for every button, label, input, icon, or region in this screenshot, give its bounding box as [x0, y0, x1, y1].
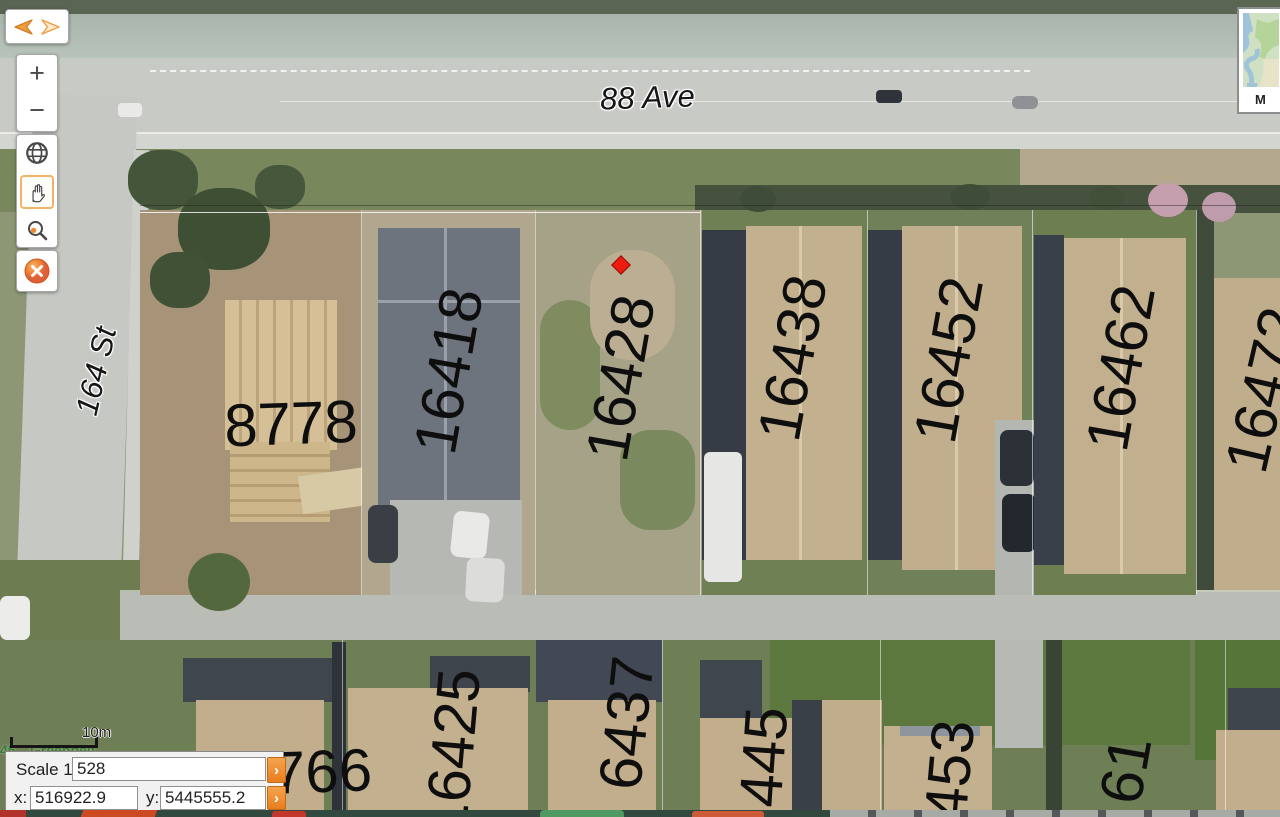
lane-road — [120, 592, 1280, 640]
y-label: y: — [146, 788, 159, 808]
parked-car — [450, 510, 491, 560]
apply-coordinates-button[interactable]: › — [267, 786, 286, 810]
parcel-label: 766 — [271, 740, 373, 803]
lot-line — [880, 640, 881, 810]
vehicle-on-road — [876, 90, 902, 103]
house-roof — [822, 700, 882, 817]
zoom-select-icon[interactable] — [25, 218, 49, 242]
roof-shadow — [868, 230, 904, 560]
scale-label: Scale 1: — [16, 760, 77, 780]
taskbar-sliver — [0, 810, 1280, 817]
vehicle-on-road — [1012, 96, 1038, 109]
lot-line — [700, 210, 701, 595]
minimap-label: M — [1255, 92, 1266, 107]
zoom-in-button[interactable]: + — [17, 55, 57, 92]
x-coordinate-input[interactable] — [30, 786, 138, 810]
x-label: x: — [14, 788, 27, 808]
globe-icon[interactable] — [24, 140, 50, 166]
parcel-label: 445 — [731, 705, 798, 809]
taskbar-icon — [81, 810, 158, 817]
taskbar-icon — [540, 810, 624, 817]
parked-car — [368, 505, 398, 563]
shrub — [950, 184, 990, 210]
lot-line — [1225, 640, 1226, 810]
parked-car — [0, 596, 30, 640]
survey-line — [140, 212, 700, 213]
back-arrow-icon[interactable] — [11, 18, 35, 36]
taskbar-section — [830, 810, 1280, 817]
driveway — [995, 640, 1043, 748]
apply-scale-button[interactable]: › — [267, 757, 286, 783]
parcel-label: 6437 — [590, 653, 664, 792]
lot-line — [1032, 210, 1033, 595]
close-x-icon[interactable] — [24, 258, 50, 284]
taskbar-icon — [692, 811, 764, 817]
parcel-label: 16425 — [416, 666, 490, 817]
close-button-panel — [16, 250, 58, 292]
zoom-panel: + − — [16, 54, 58, 132]
zoom-out-button[interactable]: − — [17, 92, 57, 129]
power-line — [140, 205, 1280, 206]
tree — [150, 252, 210, 308]
map-viewport[interactable]: 88 Ave 164 St 8778 16418 16428 16438 164… — [0, 0, 1280, 817]
house-roof — [183, 658, 333, 702]
shrub — [740, 186, 776, 212]
parked-car — [1000, 430, 1034, 486]
taskbar-icon — [272, 811, 306, 817]
vehicle-on-road — [118, 103, 142, 117]
y-coordinate-input[interactable] — [160, 786, 266, 810]
overview-minimap[interactable]: M — [1237, 7, 1280, 114]
parked-car — [1002, 494, 1036, 552]
minimap-image — [1243, 13, 1279, 92]
hedge-gap — [1046, 640, 1062, 817]
taskbar-icon — [0, 810, 26, 817]
blossom-tree — [1148, 183, 1188, 217]
scale-input[interactable] — [72, 757, 266, 781]
tree — [255, 165, 305, 209]
forward-arrow-icon[interactable] — [39, 18, 63, 36]
hedge-16472 — [1196, 210, 1214, 590]
parcel-label: 8778 — [223, 392, 358, 457]
house-roof — [1228, 688, 1280, 732]
lot-line — [1196, 210, 1197, 595]
shrub — [1090, 186, 1124, 210]
blossom-tree — [1202, 192, 1236, 222]
lot-line — [361, 210, 362, 595]
scale-coordinates-panel: Scale 1: › x: y: › — [5, 751, 284, 811]
road-centerline — [150, 70, 1030, 72]
scale-bar-label: 10m — [82, 724, 111, 741]
nav-history-panel — [5, 9, 69, 44]
pan-hand-icon[interactable] — [20, 175, 54, 209]
tree — [188, 553, 250, 611]
parcel-label: 61 — [1091, 732, 1162, 808]
parked-rv — [704, 452, 742, 582]
road-laneline — [280, 101, 1280, 102]
sidewalk-top — [0, 134, 1280, 149]
roof-shadow — [1034, 235, 1064, 565]
lot-line — [535, 210, 536, 595]
street-label-88ave: 88 Ave — [599, 80, 695, 114]
parcel-label: 453 — [916, 718, 984, 817]
canal-strip — [0, 14, 1280, 60]
lot-line — [867, 210, 868, 595]
parked-car — [465, 557, 505, 603]
tools-panel — [16, 134, 58, 248]
